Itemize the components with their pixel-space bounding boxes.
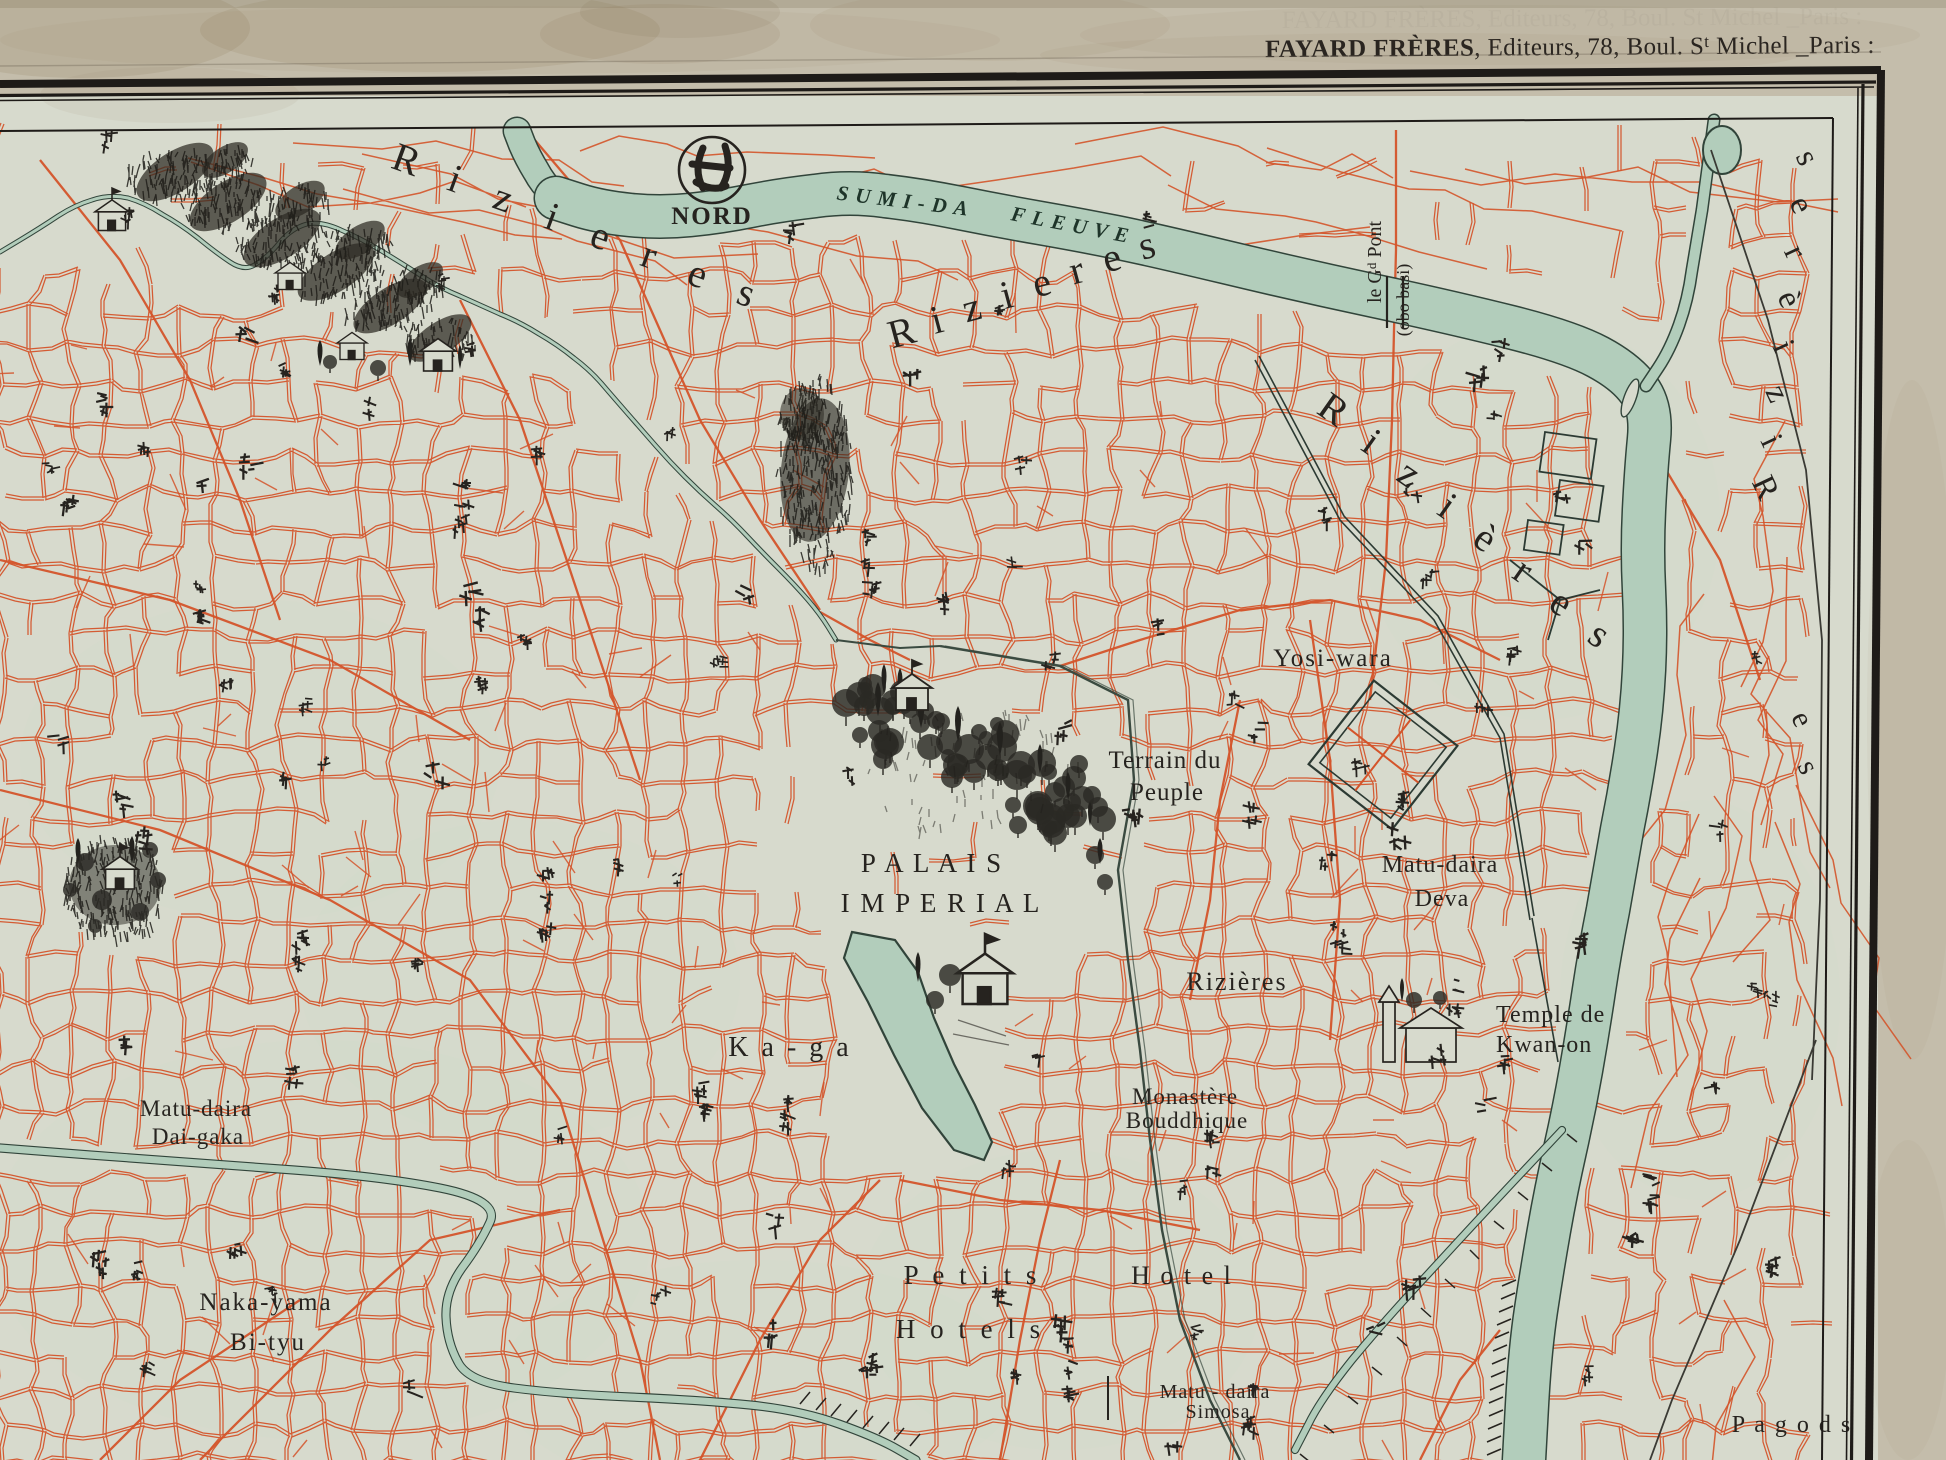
svg-text:Matu - daira: Matu - daira — [1160, 1381, 1271, 1403]
svg-text:H o t e l: H o t e l — [1131, 1261, 1233, 1290]
svg-text:P a g o d s: P a g o d s — [1732, 1412, 1852, 1438]
svg-text:Naka-yama: Naka-yama — [199, 1289, 332, 1316]
svg-text:Deva: Deva — [1415, 886, 1470, 912]
svg-text:Monastère: Monastère — [1132, 1084, 1238, 1109]
svg-text:Peuple: Peuple — [1130, 779, 1204, 806]
svg-text:NORD: NORD — [671, 203, 753, 230]
svg-text:Matu-daira: Matu-daira — [1382, 852, 1499, 878]
svg-text:Rizières: Rizières — [1186, 967, 1287, 996]
svg-text:Matu-daira: Matu-daira — [140, 1096, 252, 1121]
svg-text:FAYARD FRÈRES, Editeurs, 78, B: FAYARD FRÈRES, Editeurs, 78, Boul. St Mi… — [1282, 2, 1863, 34]
svg-text:le Gd Pont: le Gd Pont — [1364, 221, 1386, 304]
svg-text:Dai-gaka: Dai-gaka — [152, 1124, 244, 1149]
svg-text:Kwan-on: Kwan-on — [1496, 1032, 1592, 1058]
svg-text:H o t e l s: H o t e l s — [896, 1314, 1044, 1344]
svg-text:I M P E R I A L: I M P E R I A L — [841, 888, 1042, 918]
svg-text:Terrain du: Terrain du — [1108, 747, 1221, 774]
svg-text:Yosi-wara: Yosi-wara — [1273, 645, 1393, 672]
svg-text:(obo basi): (obo basi) — [1393, 264, 1414, 336]
svg-text:FAYARD FRÈRES, Editeurs, 78, B: FAYARD FRÈRES, Editeurs, 78, Boul. St Mi… — [1265, 31, 1875, 63]
svg-text:P A L A I S: P A L A I S — [861, 848, 1003, 878]
svg-text:Simosa: Simosa — [1186, 1401, 1251, 1423]
svg-text:Temple de: Temple de — [1496, 1002, 1605, 1028]
svg-text:Bi-tyu: Bi-tyu — [230, 1329, 306, 1356]
svg-text:P e t i t s: P e t i t s — [904, 1260, 1041, 1290]
svg-text:Bouddhique: Bouddhique — [1126, 1108, 1248, 1133]
svg-text:K a - g a: K a - g a — [728, 1032, 851, 1063]
